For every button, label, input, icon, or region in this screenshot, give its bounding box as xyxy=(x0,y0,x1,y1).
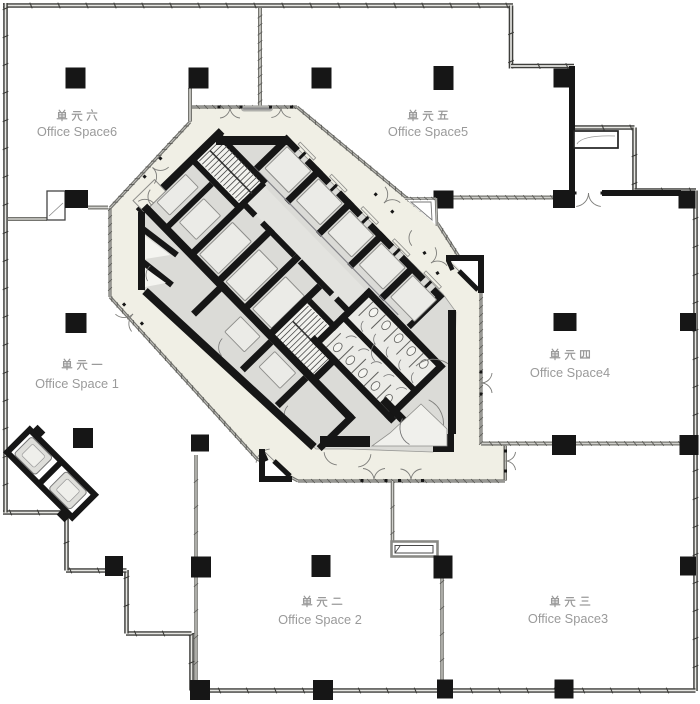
svg-text:Office Space5: Office Space5 xyxy=(388,124,468,139)
svg-text:Office Space 2: Office Space 2 xyxy=(278,612,362,627)
svg-text:Office Space3: Office Space3 xyxy=(528,611,608,626)
svg-text:Office Space6: Office Space6 xyxy=(37,124,117,139)
svg-text:Office Space 1: Office Space 1 xyxy=(35,376,119,391)
svg-text:Office Space4: Office Space4 xyxy=(530,365,610,380)
